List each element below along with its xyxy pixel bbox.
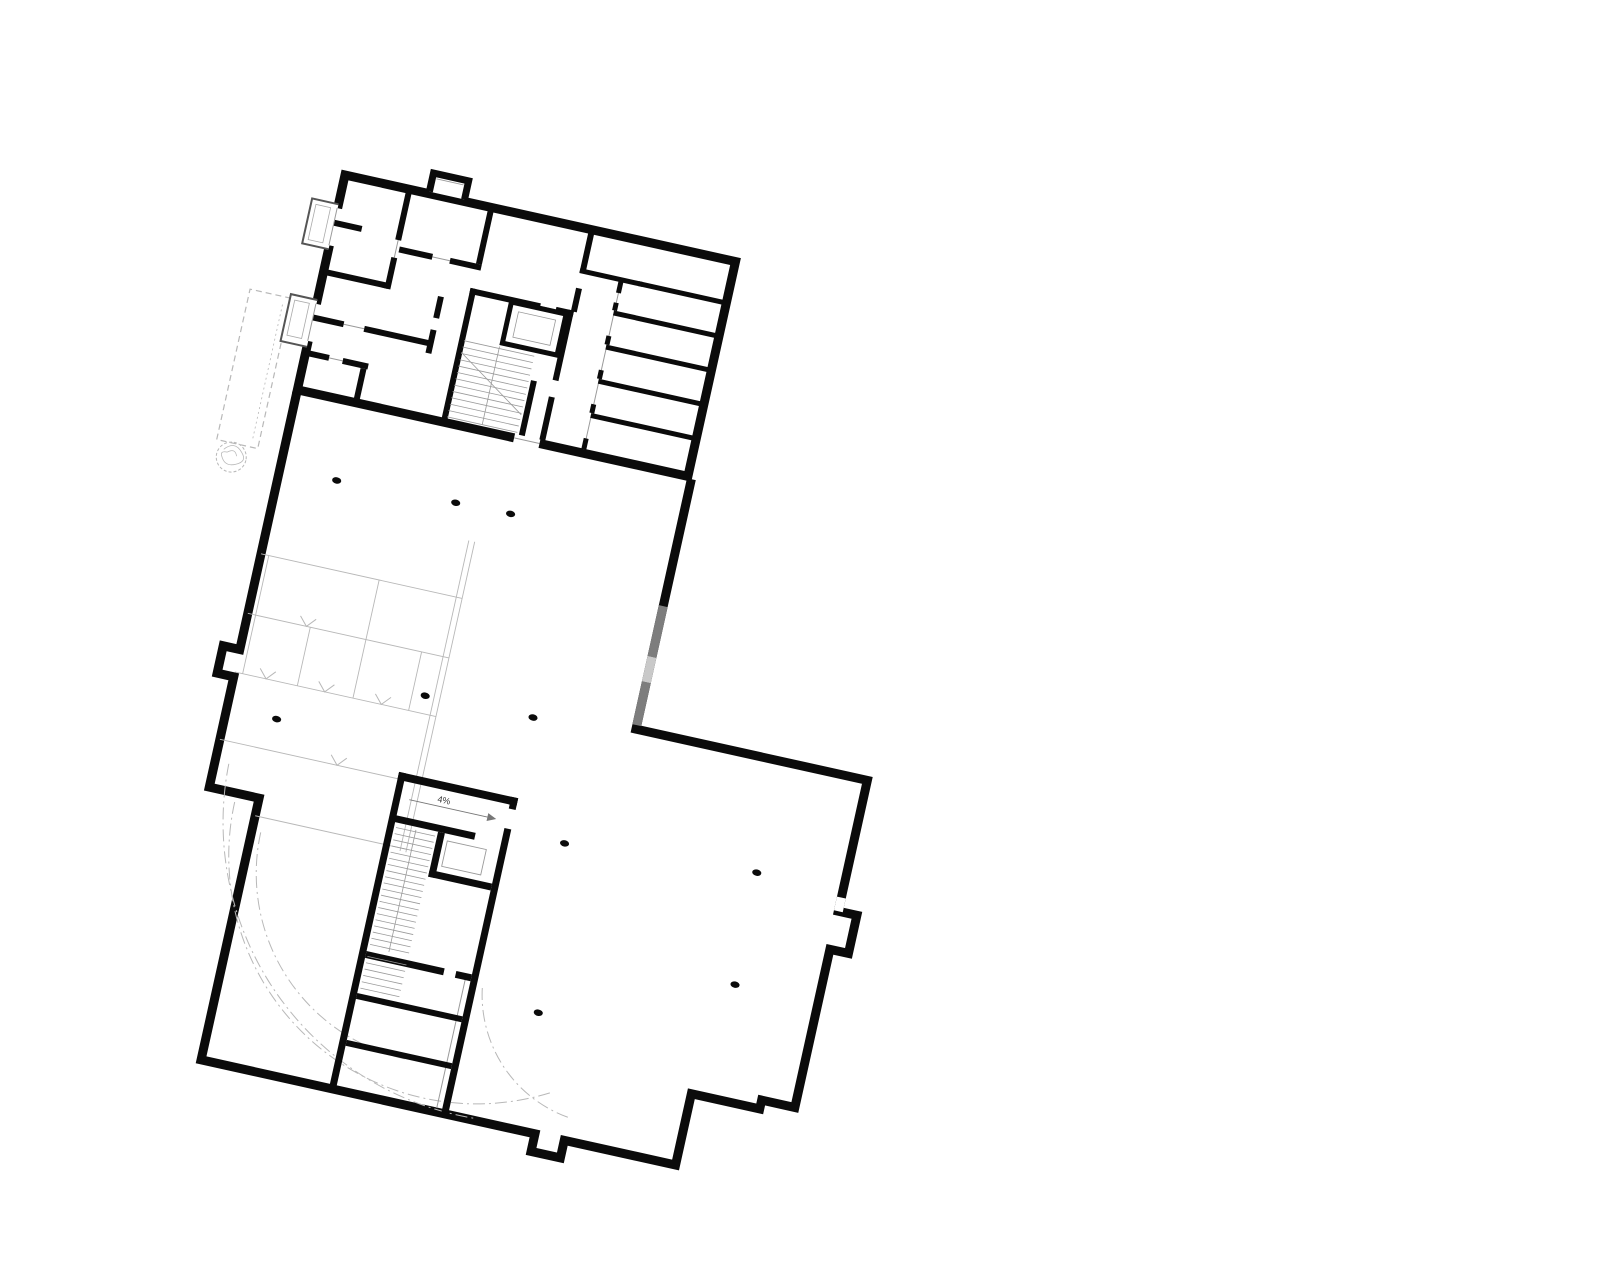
floor-plan-svg: 4% [0,0,1600,1268]
wing-elevator-shaft [502,302,566,355]
floorplan-page: 4% [0,0,1600,1268]
